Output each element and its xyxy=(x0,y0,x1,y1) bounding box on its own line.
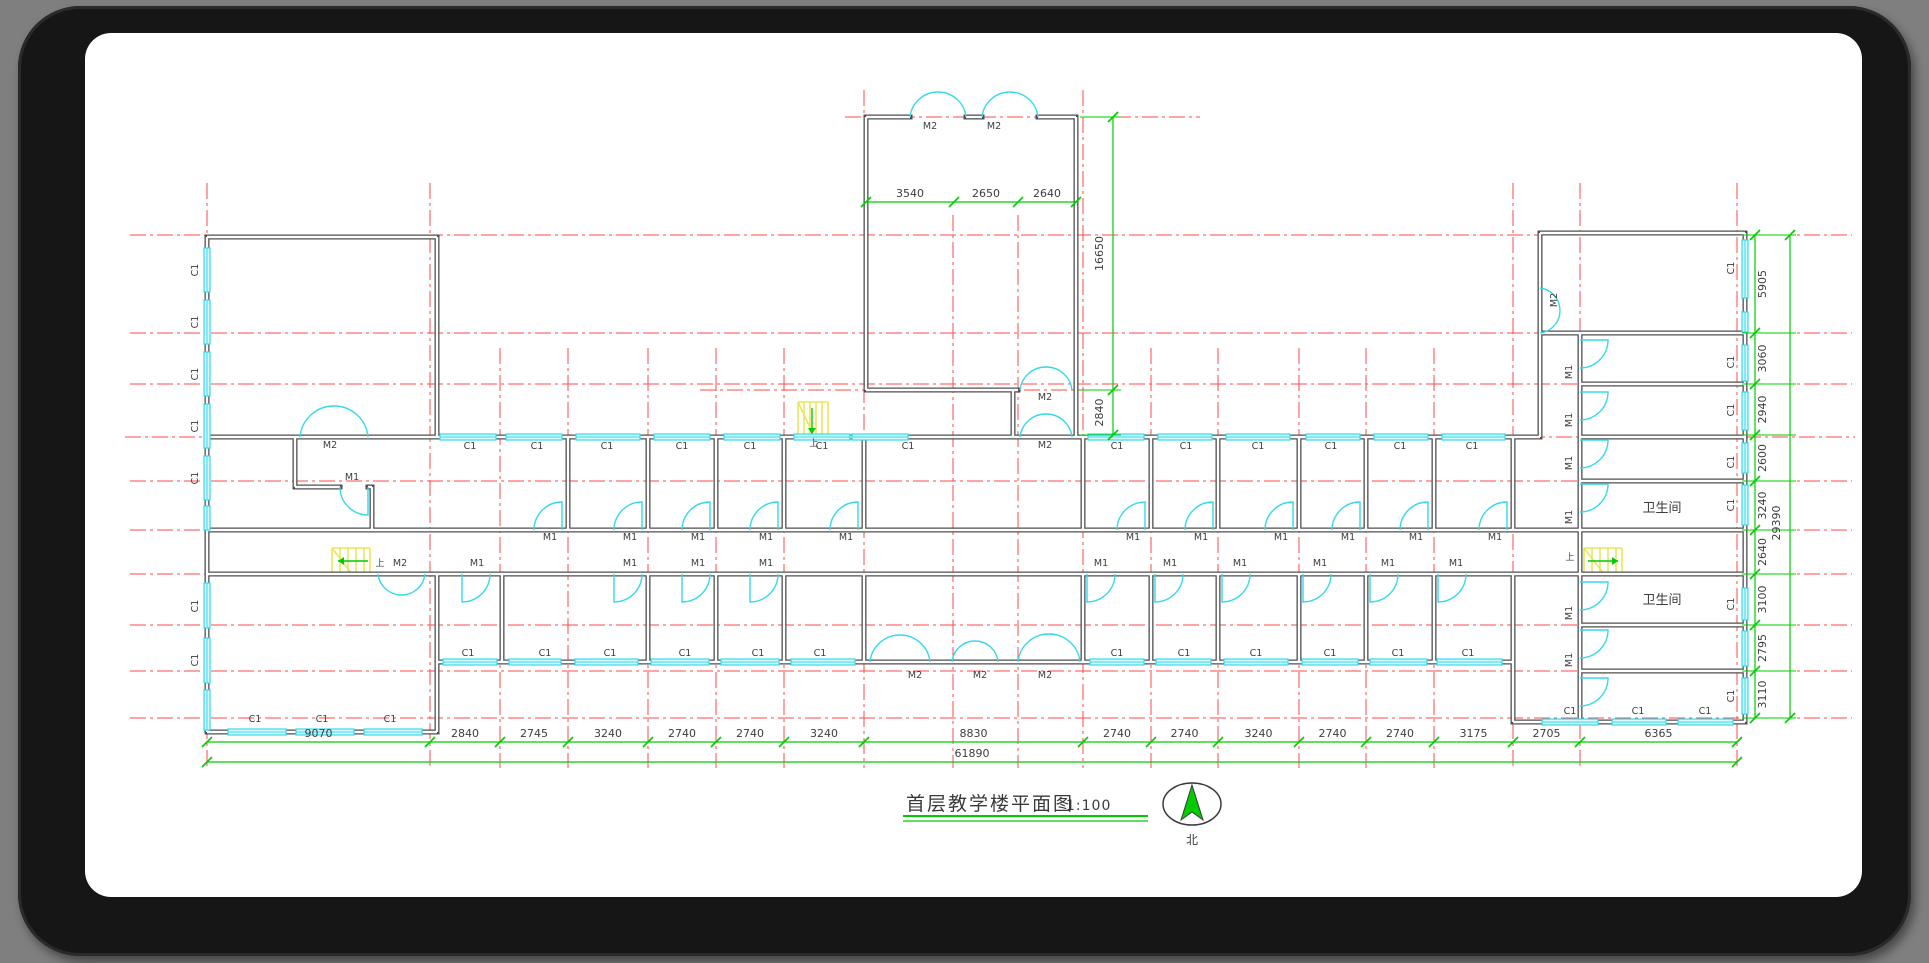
window-label-C1: C1 xyxy=(1178,648,1191,659)
window-label-C1: C1 xyxy=(1250,648,1263,659)
dimension-text: 2740 xyxy=(736,727,764,740)
door-label-M1: M1 xyxy=(1233,558,1247,569)
door-label-M2: M2 xyxy=(973,670,987,681)
dimension-text: 9070 xyxy=(305,727,333,740)
window-label-C1: C1 xyxy=(539,648,552,659)
door-label-M2: M2 xyxy=(393,558,407,569)
dimension-text: 2740 xyxy=(1386,727,1414,740)
dimension-text: 2840 xyxy=(1093,399,1106,427)
dimension-text: 2940 xyxy=(1756,396,1769,424)
door-label-M1: M1 xyxy=(691,558,705,569)
title-block: 首层教学楼平面图 1:100 北 xyxy=(903,783,1221,847)
window-label-C1: C1 xyxy=(1726,456,1737,469)
door-label-M2: M2 xyxy=(323,440,337,451)
door-label-M1: M1 xyxy=(1564,510,1575,524)
single-door-M1 xyxy=(1580,630,1608,658)
dimension-text: 2740 xyxy=(668,727,696,740)
window-label-C1: C1 xyxy=(1180,441,1193,452)
door-label-M1: M1 xyxy=(1449,558,1463,569)
north-arrow-icon xyxy=(1181,785,1203,820)
single-door-M1 xyxy=(1580,582,1608,610)
door-label-M2: M2 xyxy=(923,121,937,132)
door-label-M1: M1 xyxy=(543,532,557,543)
single-door-M1 xyxy=(1222,574,1250,602)
window-label-C1: C1 xyxy=(190,264,201,277)
door-label-M1: M1 xyxy=(759,532,773,543)
window-label-C1: C1 xyxy=(1726,598,1737,611)
door-label-M1: M1 xyxy=(1274,532,1288,543)
window-label-C1: C1 xyxy=(1466,441,1479,452)
single-door-M1 xyxy=(614,574,642,602)
double-door-M2 xyxy=(910,92,966,117)
window-label-C1: C1 xyxy=(464,441,477,452)
door-label-M1: M1 xyxy=(1564,413,1575,427)
window-label-C1: C1 xyxy=(1726,404,1737,417)
dimension-text: 2650 xyxy=(972,187,1000,200)
single-door-M1 xyxy=(682,574,710,602)
door-label-M1: M1 xyxy=(623,532,637,543)
window-label-C1: C1 xyxy=(814,648,827,659)
single-door-M1 xyxy=(1580,484,1608,512)
dimension-text: 2705 xyxy=(1533,727,1561,740)
window-label-C1: C1 xyxy=(1726,262,1737,275)
door-label-M1: M1 xyxy=(1564,606,1575,620)
door-label-M1: M1 xyxy=(1564,653,1575,667)
window-label-C1: C1 xyxy=(1564,706,1577,717)
stair-up-label: 上 xyxy=(375,558,384,569)
single-door-M1 xyxy=(1332,502,1360,530)
dimension-text: 8830 xyxy=(960,727,988,740)
window-label-C1: C1 xyxy=(604,648,617,659)
double-door-M2 xyxy=(300,406,368,437)
window-label-C1: C1 xyxy=(190,600,201,613)
door-label-M1: M1 xyxy=(1381,558,1395,569)
floor-plan-drawing: 9070284027453240274027403240883027402740… xyxy=(0,0,1929,963)
window-label-C1: C1 xyxy=(676,441,689,452)
window-label-C1: C1 xyxy=(601,441,614,452)
dimension-total: 29390 xyxy=(1770,506,1783,541)
single-door-M1 xyxy=(340,487,368,515)
dimension-text: 2640 xyxy=(1033,187,1061,200)
double-door-M2 xyxy=(1020,367,1072,390)
single-door-M1 xyxy=(1303,574,1331,602)
double-door-M2 xyxy=(1018,634,1080,662)
door-label-M1: M1 xyxy=(691,532,705,543)
single-door-M1 xyxy=(750,502,778,530)
room-label-bathroom: 卫生间 xyxy=(1642,501,1681,516)
room-label-bathroom: 卫生间 xyxy=(1642,593,1681,608)
dimension-text: 2745 xyxy=(520,727,548,740)
single-door-M1 xyxy=(1580,340,1608,368)
window-label-C1: C1 xyxy=(1726,690,1737,703)
door-label-M1: M1 xyxy=(1313,558,1327,569)
single-door-M1 xyxy=(830,502,858,530)
window-label-C1: C1 xyxy=(679,648,692,659)
dimension-text: 2600 xyxy=(1756,444,1769,472)
dimension-text: 16650 xyxy=(1093,236,1106,271)
dimension-text: 2740 xyxy=(1103,727,1131,740)
dimension-text: 2740 xyxy=(1171,727,1199,740)
drawing-title: 首层教学楼平面图 xyxy=(906,793,1074,815)
single-door-M1 xyxy=(682,502,710,530)
door-label-M2: M2 xyxy=(908,670,922,681)
door-label-M1: M1 xyxy=(1564,365,1575,379)
drawing-scale: 1:100 xyxy=(1066,798,1111,814)
window-label-C1: C1 xyxy=(384,714,397,725)
single-door-M1 xyxy=(614,502,642,530)
dimension-text: 3240 xyxy=(1245,727,1273,740)
door-label-M1: M1 xyxy=(1564,456,1575,470)
dimension-text: 5905 xyxy=(1756,270,1769,298)
double-door-M2 xyxy=(870,635,930,662)
double-door-M2 xyxy=(982,92,1038,117)
window-label-C1: C1 xyxy=(1726,499,1737,512)
window-label-C1: C1 xyxy=(190,420,201,433)
window-label-C1: C1 xyxy=(316,714,329,725)
window-label-C1: C1 xyxy=(190,472,201,485)
single-door-M1 xyxy=(1087,574,1115,602)
dimension-text: 2840 xyxy=(451,727,479,740)
dimension-text: 3175 xyxy=(1460,727,1488,740)
window-label-C1: C1 xyxy=(249,714,262,725)
single-door-M1 xyxy=(462,574,490,602)
dimension-text: 3100 xyxy=(1756,586,1769,614)
window-label-C1: C1 xyxy=(1392,648,1405,659)
dimension-total: 61890 xyxy=(955,747,990,760)
stair-up-label: 上 xyxy=(809,438,818,449)
door-label-M1: M1 xyxy=(345,472,359,483)
window-label-C1: C1 xyxy=(1632,706,1645,717)
door-label-M2: M2 xyxy=(1038,392,1052,403)
single-door-M1 xyxy=(1580,678,1608,706)
dimension-text: 3540 xyxy=(896,187,924,200)
door-label-M1: M1 xyxy=(470,558,484,569)
window-label-C1: C1 xyxy=(1462,648,1475,659)
single-door-M1 xyxy=(1185,502,1213,530)
single-door-M1 xyxy=(1400,502,1428,530)
door-label-M1: M1 xyxy=(839,532,853,543)
window-label-C1: C1 xyxy=(531,441,544,452)
window-label-C1: C1 xyxy=(1726,356,1737,369)
stairs-layer xyxy=(332,402,1622,574)
single-door-M1 xyxy=(750,574,778,602)
door-label-M1: M1 xyxy=(1488,532,1502,543)
window-label-C1: C1 xyxy=(1699,706,1712,717)
window-label-C1: C1 xyxy=(1111,648,1124,659)
labels-layer: C1C1C1C1C1C1C1C1C1C1C1C1C1C1C1C1C1C1C1C1… xyxy=(190,121,1737,725)
single-door-M1 xyxy=(534,502,562,530)
door-label-M2: M2 xyxy=(1038,670,1052,681)
window-label-C1: C1 xyxy=(744,441,757,452)
dimension-text: 3240 xyxy=(810,727,838,740)
door-label-M1: M1 xyxy=(1341,532,1355,543)
dimension-text: 2795 xyxy=(1756,634,1769,662)
window-label-C1: C1 xyxy=(1111,441,1124,452)
double-door-M2 xyxy=(378,574,425,595)
door-label-M2: M2 xyxy=(1038,440,1052,451)
single-door-M1 xyxy=(1580,392,1608,420)
dimension-text: 3110 xyxy=(1756,681,1769,709)
dimension-text: 2640 xyxy=(1756,538,1769,566)
stair-arrow-head xyxy=(1612,557,1618,565)
single-door-M1 xyxy=(1117,502,1145,530)
window-label-C1: C1 xyxy=(1325,441,1338,452)
door-label-M1: M1 xyxy=(623,558,637,569)
screenshot-stage: 9070284027453240274027403240883027402740… xyxy=(0,0,1929,963)
dimension-text: 2740 xyxy=(1319,727,1347,740)
window-label-C1: C1 xyxy=(190,368,201,381)
double-door-M2 xyxy=(952,641,998,662)
door-label-M1: M1 xyxy=(759,558,773,569)
single-door-M1 xyxy=(1438,574,1466,602)
single-door-M1 xyxy=(1370,574,1398,602)
stair-up-label: 上 xyxy=(1565,552,1574,563)
single-door-M1 xyxy=(1580,440,1608,468)
dimension-text: 3240 xyxy=(1756,492,1769,520)
single-door-M1 xyxy=(1155,574,1183,602)
window-label-C1: C1 xyxy=(1252,441,1265,452)
dimension-text: 3240 xyxy=(594,727,622,740)
door-label-M2: M2 xyxy=(1549,293,1560,307)
window-label-C1: C1 xyxy=(190,654,201,667)
window-label-C1: C1 xyxy=(190,316,201,329)
door-label-M1: M1 xyxy=(1126,532,1140,543)
double-door-M2 xyxy=(1020,414,1072,437)
window-label-C1: C1 xyxy=(902,441,915,452)
dimension-text: 6365 xyxy=(1645,727,1673,740)
north-label: 北 xyxy=(1186,833,1198,847)
door-label-M1: M1 xyxy=(1409,532,1423,543)
door-label-M1: M1 xyxy=(1094,558,1108,569)
door-label-M2: M2 xyxy=(987,121,1001,132)
single-door-M1 xyxy=(1265,502,1293,530)
doors-layer xyxy=(300,92,1608,706)
window-label-C1: C1 xyxy=(462,648,475,659)
door-label-M1: M1 xyxy=(1163,558,1177,569)
single-door-M1 xyxy=(1479,502,1507,530)
window-label-C1: C1 xyxy=(752,648,765,659)
window-label-C1: C1 xyxy=(1394,441,1407,452)
door-label-M1: M1 xyxy=(1194,532,1208,543)
dimension-text: 3060 xyxy=(1756,345,1769,373)
window-label-C1: C1 xyxy=(1324,648,1337,659)
